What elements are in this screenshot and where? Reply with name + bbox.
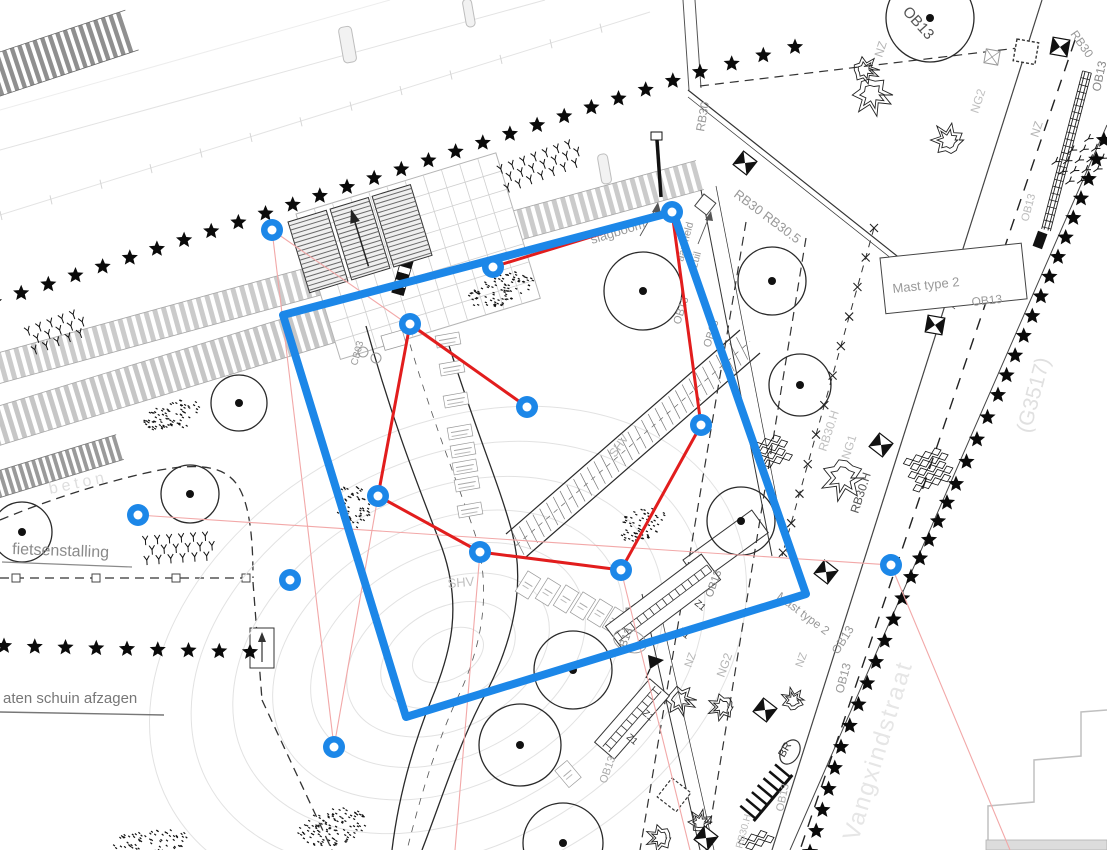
line [540, 160, 544, 165]
line [308, 827, 310, 829]
line [172, 402, 174, 404]
line [131, 847, 133, 849]
line [115, 847, 117, 849]
label-ob13-circle: OB13 [899, 3, 937, 43]
boundary-star [802, 844, 818, 850]
label-rb30h-c: RB30.H [734, 813, 754, 850]
line [332, 808, 334, 810]
line [85, 329, 93, 358]
line [144, 556, 147, 560]
photo-marker-2[interactable] [482, 256, 504, 278]
mast-symbol [733, 151, 757, 175]
line [320, 844, 322, 846]
line [356, 486, 358, 488]
boundary-star [119, 641, 135, 656]
label-g3517: (G3517) [1013, 355, 1055, 435]
line [536, 205, 544, 234]
line [360, 508, 362, 510]
line [663, 514, 665, 516]
line [293, 271, 301, 300]
line [526, 521, 537, 543]
mast-symbol [694, 826, 718, 850]
mast-symbol [925, 315, 945, 335]
line [78, 318, 82, 323]
line [307, 841, 309, 843]
shrub-tree [782, 687, 805, 710]
line [656, 516, 658, 518]
boundary-star [583, 99, 599, 114]
line [1087, 134, 1092, 139]
line [657, 523, 659, 525]
boundary-star [1081, 171, 1097, 186]
photo-marker-10[interactable] [127, 504, 149, 526]
line [113, 844, 115, 846]
line [156, 555, 159, 559]
line [632, 522, 634, 524]
line [170, 554, 173, 558]
boundary-star [180, 642, 196, 657]
line [357, 810, 359, 812]
line [67, 322, 71, 327]
line [162, 408, 164, 410]
line [299, 827, 301, 829]
line [623, 533, 625, 535]
line [16, 348, 24, 377]
line [162, 414, 164, 416]
line [368, 503, 370, 505]
line [1047, 206, 1056, 208]
line [50, 338, 58, 367]
line [7, 350, 15, 379]
line [128, 836, 130, 838]
line [181, 533, 184, 537]
line [185, 543, 188, 547]
line [202, 532, 205, 536]
line [528, 164, 532, 169]
photo-marker-5[interactable] [516, 396, 538, 418]
shrub-row [142, 531, 215, 565]
line [56, 326, 60, 331]
line [149, 833, 151, 835]
label-nz-b: NZ [1028, 119, 1046, 139]
line [356, 526, 358, 528]
tree-center [768, 277, 776, 285]
line [344, 820, 346, 822]
boundary-star [1073, 190, 1089, 205]
photo-marker-6[interactable] [690, 414, 712, 436]
line [182, 416, 184, 418]
line [345, 813, 347, 815]
line [1072, 112, 1081, 114]
boundary-dashed [0, 467, 253, 578]
boundary-star [67, 267, 83, 282]
boundary-star [808, 823, 824, 838]
line [347, 832, 349, 834]
fence-post [172, 574, 180, 582]
line [562, 197, 570, 226]
label-note-afzagen: aten schuin afzagen [3, 690, 137, 707]
line [335, 829, 337, 831]
line [623, 181, 631, 210]
line [769, 771, 784, 784]
line [800, 40, 1075, 850]
ladder-end [1033, 231, 1048, 249]
photo-marker-8[interactable] [469, 541, 491, 563]
line [297, 832, 299, 834]
line [594, 461, 605, 483]
line [33, 334, 37, 339]
line [346, 809, 348, 811]
line [614, 183, 622, 212]
line [515, 180, 519, 185]
line [693, 162, 701, 191]
line [560, 491, 571, 513]
line [302, 832, 304, 834]
line [350, 815, 352, 817]
line [111, 322, 119, 351]
line [318, 831, 320, 833]
line [632, 178, 640, 207]
line [1044, 220, 1053, 222]
line [155, 416, 157, 418]
line [625, 529, 627, 531]
line [303, 837, 305, 839]
line [133, 836, 135, 838]
line [137, 315, 145, 344]
line [450, 70, 452, 79]
line [33, 343, 41, 372]
line [360, 513, 362, 515]
line [334, 819, 336, 821]
line [642, 517, 644, 519]
stepped-outline [988, 710, 1107, 850]
line [650, 528, 652, 530]
line [682, 385, 693, 407]
line [1053, 186, 1062, 188]
boundary-star [939, 494, 955, 509]
line [1070, 118, 1079, 120]
line [356, 829, 358, 831]
line [337, 833, 339, 835]
line [519, 157, 523, 162]
line [186, 425, 188, 427]
boundary-star [948, 476, 964, 491]
line [545, 202, 553, 231]
fence-post [12, 574, 20, 582]
boundary-star [57, 639, 73, 654]
line [327, 815, 329, 817]
hatched-square [1013, 39, 1038, 64]
line [183, 832, 185, 834]
photo-marker-13[interactable] [323, 736, 345, 758]
line [573, 148, 577, 153]
line [169, 419, 171, 421]
bollard [462, 0, 476, 28]
line [166, 840, 168, 842]
line [1079, 84, 1088, 86]
mast-symbol [753, 698, 777, 722]
line [267, 279, 275, 308]
line [621, 534, 623, 536]
label-ob13-a: OB13 [671, 295, 691, 325]
line [200, 542, 203, 546]
line [205, 532, 208, 536]
line [176, 544, 179, 548]
line [702, 367, 713, 389]
line [1068, 177, 1073, 182]
line [364, 825, 366, 827]
line [319, 817, 321, 819]
line [100, 180, 102, 189]
line [166, 418, 168, 420]
line [367, 508, 369, 510]
boundary-star [88, 640, 104, 655]
elevation-tag [450, 442, 476, 458]
line [166, 534, 169, 538]
line [354, 832, 356, 834]
line [53, 337, 57, 342]
line [540, 509, 551, 531]
boundary-star [833, 739, 849, 754]
boundary-star [827, 760, 843, 775]
line [173, 839, 175, 841]
line [355, 515, 357, 517]
line [120, 319, 128, 348]
line [50, 195, 52, 204]
line [197, 542, 200, 546]
line [158, 414, 160, 416]
boundary-star [1096, 132, 1107, 147]
line [526, 176, 530, 181]
bollard [338, 26, 357, 64]
label-street: Vangxindstraat [838, 658, 918, 844]
line [198, 406, 200, 408]
line [344, 834, 346, 836]
line [142, 536, 145, 540]
line [357, 822, 359, 824]
line [163, 425, 165, 427]
line [182, 426, 184, 428]
line [163, 307, 171, 336]
line [348, 496, 350, 498]
line [348, 816, 350, 818]
line [308, 820, 310, 822]
line [159, 419, 161, 421]
line [198, 298, 206, 327]
line [646, 530, 648, 532]
line [1074, 105, 1083, 107]
label-rb30-topright: RB30 [1068, 28, 1097, 61]
boundary-star [393, 161, 409, 176]
line [196, 408, 198, 410]
line [506, 172, 510, 177]
slagboom-post [651, 132, 662, 140]
line [119, 837, 121, 839]
label-rb30-pair: RB30 RB30.5 [731, 186, 804, 246]
photo-marker-11[interactable] [279, 569, 301, 591]
line [184, 407, 186, 409]
line [154, 535, 157, 539]
boundary-star [448, 143, 464, 158]
line [560, 163, 564, 168]
line [350, 826, 352, 828]
photo-marker-1[interactable] [261, 219, 283, 241]
tree-center [18, 528, 26, 536]
line [300, 117, 302, 126]
line [562, 152, 566, 157]
line [655, 408, 666, 430]
boundary-star [149, 240, 165, 255]
line [632, 540, 634, 542]
line [1067, 132, 1076, 134]
line [184, 412, 186, 414]
line [182, 836, 184, 838]
line [500, 55, 502, 64]
photo-marker-9[interactable] [610, 559, 632, 581]
boundary-star [211, 643, 227, 658]
line [684, 164, 692, 193]
line [526, 353, 760, 557]
line [131, 844, 133, 846]
line [138, 848, 140, 850]
line [207, 295, 215, 324]
label-nz-c: NZ [683, 651, 699, 669]
line [121, 835, 123, 837]
contour [318, 540, 577, 770]
line [154, 834, 156, 836]
boundary-star [285, 196, 301, 211]
path-edge-right [422, 336, 518, 850]
line [553, 144, 557, 149]
line [639, 525, 641, 527]
line [141, 835, 143, 837]
line [149, 412, 151, 414]
line [698, 217, 709, 244]
note-underline [0, 712, 164, 715]
line [361, 829, 363, 831]
line [129, 845, 131, 847]
line [357, 825, 359, 827]
boundary-star [312, 187, 328, 202]
line [158, 555, 161, 559]
line [160, 421, 162, 423]
boundary-star [150, 641, 166, 656]
line [259, 281, 267, 310]
line [169, 534, 172, 538]
tree-center [796, 381, 804, 389]
line [326, 830, 328, 832]
line [173, 544, 176, 548]
tree-center [737, 517, 745, 525]
line [233, 288, 241, 317]
line [1051, 193, 1060, 195]
line [0, 12, 650, 215]
line [1046, 213, 1055, 215]
shrub-tree [647, 825, 671, 850]
line [341, 488, 343, 490]
label-ob13-box: OB13 [971, 292, 1003, 309]
line [571, 195, 579, 224]
elevation-tag [457, 502, 483, 518]
line [188, 416, 190, 418]
line [200, 149, 202, 158]
stipple-blob [140, 395, 203, 437]
line [657, 140, 661, 197]
line [1077, 155, 1082, 160]
elevation-tag [452, 459, 478, 475]
line [663, 512, 665, 514]
line [348, 506, 350, 508]
tree-center [639, 287, 647, 295]
line [661, 519, 663, 521]
line [368, 511, 370, 513]
line [517, 168, 521, 173]
boundary-star [1065, 210, 1081, 225]
line [250, 133, 252, 142]
bollard [597, 153, 612, 184]
boundary-star [1088, 151, 1104, 166]
line [155, 310, 163, 339]
line [0, 211, 2, 220]
line [168, 410, 170, 412]
line [662, 402, 673, 424]
line [150, 164, 152, 173]
photo-marker-3[interactable] [661, 201, 683, 223]
line [146, 556, 149, 560]
line [341, 817, 343, 819]
line [1055, 179, 1064, 181]
line [775, 764, 790, 777]
line [151, 831, 153, 833]
line [1069, 125, 1078, 127]
line [641, 420, 652, 442]
photo-marker-7[interactable] [367, 485, 389, 507]
line [170, 829, 172, 831]
line [630, 517, 632, 519]
line [354, 815, 356, 817]
line [0, 353, 6, 382]
line [212, 541, 215, 545]
label-ob13-e: OB13 [832, 661, 854, 695]
boundary-star [903, 569, 919, 584]
label-rb30-vert: RB30 [693, 100, 712, 132]
boundary-star [787, 39, 803, 54]
line [132, 834, 134, 836]
photo-marker-12[interactable] [880, 554, 902, 576]
line [1065, 139, 1074, 141]
label-ob13-d: OB13 [829, 623, 857, 657]
line [156, 830, 158, 832]
boundary-star [0, 638, 12, 653]
line [654, 520, 656, 522]
line [1083, 71, 1092, 73]
photo-marker-4[interactable] [399, 313, 421, 335]
line [165, 412, 167, 414]
line [44, 330, 48, 335]
line [327, 813, 329, 815]
line [363, 498, 365, 500]
line [184, 404, 186, 406]
line [192, 552, 195, 556]
cad-viewport[interactable]: fietsenstalling beton aten schuin afzage… [0, 0, 1107, 850]
line [627, 532, 629, 534]
tree-center [235, 399, 243, 407]
line [653, 525, 655, 527]
line [597, 188, 605, 217]
line [554, 200, 562, 229]
line [145, 423, 147, 425]
boundary-star [958, 453, 974, 468]
